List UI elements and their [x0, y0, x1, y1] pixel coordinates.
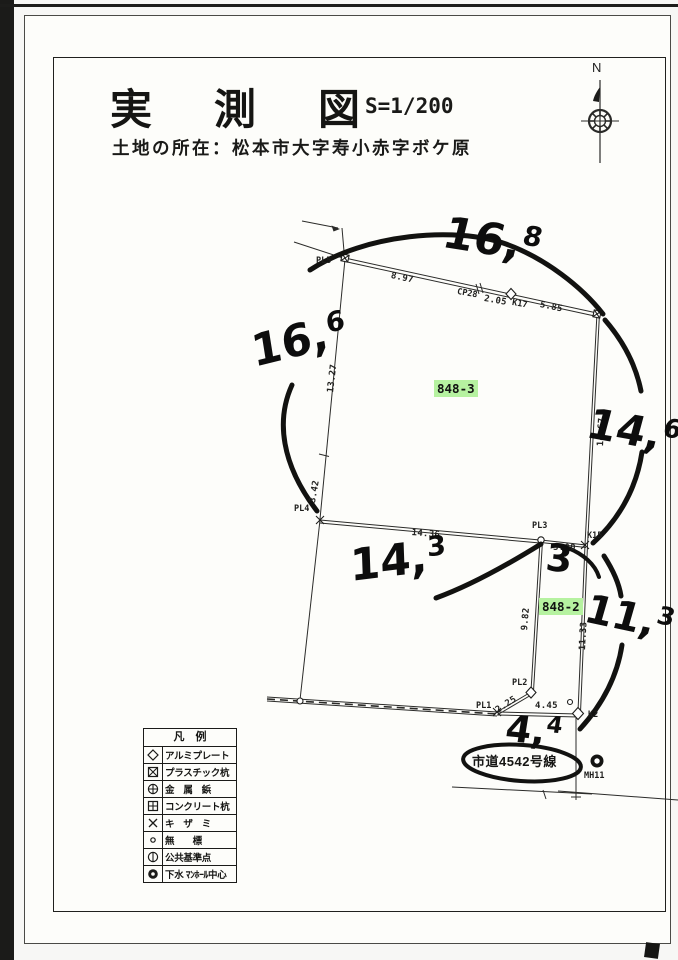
- point-label-pl5: PL5: [316, 256, 331, 266]
- legend-row: 無 標: [144, 832, 236, 849]
- road-name: 市道4542号線: [472, 751, 557, 770]
- square-x-icon: [144, 764, 163, 780]
- legend-row: プラスチック杭: [144, 764, 236, 781]
- measurement-label: 9.82: [520, 607, 532, 631]
- handwritten-4-4: 4,4: [503, 710, 564, 751]
- survey-drawing: [0, 0, 678, 960]
- legend-row: 金 属 鋲: [144, 781, 236, 798]
- handwritten-3: 3: [544, 538, 574, 579]
- filled-circle-dot-icon: [144, 866, 163, 882]
- legend-row: コンクリート杭: [144, 798, 236, 815]
- pl2-marker: [526, 687, 536, 698]
- parcel-number-848-2: 848-2: [539, 598, 583, 615]
- no-mark-point: [297, 698, 303, 704]
- circle-cross-icon: [144, 781, 163, 797]
- point-label-pl1: PL1: [476, 701, 491, 711]
- diamond-outline-icon: [144, 747, 163, 763]
- k2-marker: [573, 708, 584, 720]
- scanned-survey-page: 実測図 S=1/200 土地の所在：松本市大字寿小赤字ボケ原 N: [0, 0, 678, 960]
- point-label-pl4: PL4: [294, 504, 309, 514]
- legend-row: 公共基準点: [144, 849, 236, 866]
- legend-row: アルミプレート: [144, 747, 236, 764]
- legend-table: 凡 例 アルミプレート プラスチック杭 金 属 鋲 コンクリート杭 キ ザ ミ …: [143, 728, 237, 883]
- x-mark-icon: [144, 815, 163, 831]
- legend-row: キ ザ ミ: [144, 815, 236, 832]
- point-label-pl3: PL3: [532, 521, 547, 531]
- legend-row: 下水 ﾏﾝﾎｰﾙ中心: [144, 866, 236, 882]
- point-label-pl2: PL2: [512, 678, 527, 688]
- point-label-mh11: MH11: [584, 771, 604, 781]
- parcel-number-848-3: 848-3: [434, 380, 478, 397]
- point-label-k2: K2: [588, 710, 598, 720]
- north-arrow-icon: [581, 80, 619, 163]
- square-cross-icon: [144, 798, 163, 814]
- k2-sub-marker: [568, 700, 573, 705]
- circle-bar-icon: [144, 849, 163, 865]
- small-circle-icon: [144, 832, 163, 848]
- legend-title: 凡 例: [144, 729, 236, 747]
- point-label-k15: K15: [587, 531, 602, 541]
